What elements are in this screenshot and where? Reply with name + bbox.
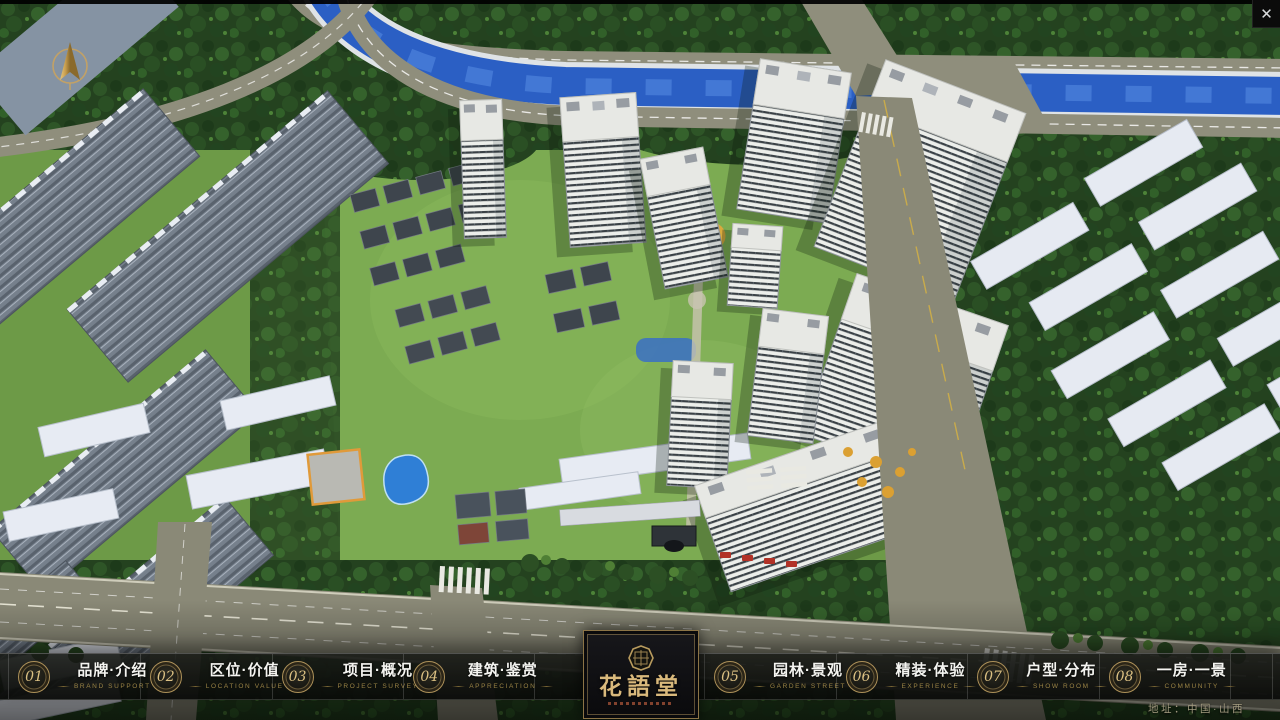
presentation-window: ✕ 01品牌·介绍BRAND SUPPORT02区位·价值LOCATION VA… (0, 0, 1280, 720)
nav-item-label-zh: 户型·分布 (1026, 663, 1096, 680)
project-logo-name: 花語堂 (599, 675, 683, 698)
nav-item-label-zh: 品牌·介绍 (77, 663, 147, 680)
nav-item-text: 户型·分布SHOW ROOM (1016, 663, 1107, 690)
nav-item-label-en: APPRECIATION (452, 683, 553, 690)
project-logo[interactable]: 花語堂 (583, 630, 699, 719)
nav-item-05[interactable]: 05园林·景观GARDEN STREET (704, 654, 836, 699)
nav-item-03[interactable]: 03项目·概况PROJECT SURVEY (272, 654, 404, 699)
nav-item-label-en: COMMUNITY (1148, 683, 1236, 690)
close-button[interactable]: ✕ (1252, 0, 1280, 28)
nav-item-02[interactable]: 02区位·价值LOCATION VALUE (140, 654, 272, 699)
nav-item-label-zh: 园林·景观 (773, 663, 843, 680)
nav-item-label-en: SHOW ROOM (1016, 683, 1107, 690)
nav-item-04[interactable]: 04建筑·鉴赏APPRECIATION (403, 654, 535, 699)
nav-item-text: 精装·体验EXPERIENCE (885, 663, 977, 690)
nav-item-number-badge: 05 (714, 661, 746, 693)
nav-item-08[interactable]: 08一房·一景COMMUNITY (1099, 654, 1231, 699)
nav-item-number-badge: 07 (977, 661, 1009, 693)
nav-item-number-badge: 03 (282, 661, 314, 693)
nav-item-01[interactable]: 01品牌·介绍BRAND SUPPORT (8, 654, 140, 699)
nav-item-number-badge: 06 (846, 661, 878, 693)
nav-item-07[interactable]: 07户型·分布SHOW ROOM (967, 654, 1099, 699)
project-logo-subtitle (608, 702, 674, 705)
nav-item-label-zh: 建筑·鉴赏 (468, 663, 538, 680)
nav-item-number-badge: 08 (1109, 661, 1141, 693)
seal-emblem-icon (628, 645, 654, 671)
nav-item-label-zh: 一房·一景 (1157, 663, 1227, 680)
nav-item-number-badge: 04 (413, 661, 445, 693)
nav-item-06[interactable]: 06精装·体验EXPERIENCE (836, 654, 968, 699)
top-letterbox-strip (0, 0, 1280, 4)
nav-separator (1272, 654, 1273, 699)
nav-item-number-badge: 01 (18, 661, 50, 693)
nav-item-text: 建筑·鉴赏APPRECIATION (452, 663, 553, 690)
nav-item-label-zh: 精装·体验 (895, 663, 965, 680)
nav-item-text: 一房·一景COMMUNITY (1148, 663, 1236, 690)
masterplan-3d-view[interactable] (0, 0, 1280, 720)
project-address: 地址：中国·山西 (1148, 701, 1245, 716)
nav-item-label-en: EXPERIENCE (885, 683, 977, 690)
nav-item-number-badge: 02 (150, 661, 182, 693)
nav-item-label-zh: 区位·价值 (210, 663, 280, 680)
